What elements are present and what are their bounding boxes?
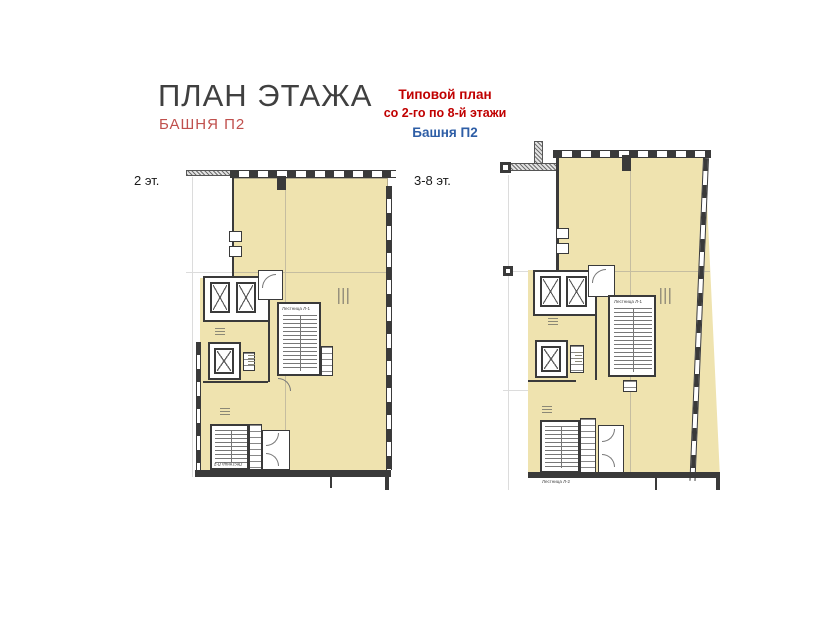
column	[503, 266, 513, 276]
wall-niche	[556, 243, 569, 254]
vestibule	[258, 270, 283, 300]
elevator-icon	[541, 346, 561, 372]
shaft	[580, 418, 596, 473]
text-mark	[248, 355, 255, 365]
staircase-room-bottom	[540, 420, 580, 473]
area-label-mark	[338, 288, 350, 304]
door-arc-icon	[602, 429, 615, 442]
wall-segment	[203, 381, 268, 383]
wall-segment	[528, 380, 576, 382]
staircase-room-bottom: Лестница Л-2	[210, 424, 249, 470]
floor-plan-3-8: Лестница Л-1 Лестница Л-2	[498, 138, 730, 508]
staircase-label: Лестница Л-1	[614, 299, 642, 304]
stair-treads-icon	[545, 426, 578, 468]
typical-plan-note: Типовой план со 2-го по 8-й этажи Башня …	[360, 85, 530, 142]
elevator-icon	[566, 276, 587, 307]
window-wall-top	[553, 150, 711, 158]
page-subtitle: БАШНЯ П2	[159, 116, 245, 133]
grid-line	[503, 390, 528, 391]
wall-segment	[556, 158, 559, 272]
elevator-x-icon	[544, 349, 558, 369]
grid-line	[192, 177, 193, 477]
staircase-room-top: Лестница Л-1	[608, 295, 656, 377]
text-mark	[542, 406, 552, 414]
wall-niche	[229, 231, 242, 242]
stair-divider	[561, 426, 562, 468]
wall-segment	[655, 478, 657, 490]
elevator-icon	[540, 276, 561, 307]
wall-bottom	[195, 470, 391, 477]
elevator-room	[535, 340, 568, 378]
elevator-x-icon	[543, 279, 558, 304]
grid-line	[508, 175, 509, 490]
stair-divider	[300, 315, 301, 371]
wall-segment	[716, 477, 720, 490]
door-arc-icon	[592, 269, 606, 283]
elevator-room	[208, 342, 241, 380]
shaft	[321, 346, 333, 376]
wall-niche	[556, 228, 569, 239]
elevator-x-icon	[569, 279, 584, 304]
vestibule	[262, 430, 290, 470]
window-wall-right	[386, 186, 392, 470]
text-mark	[220, 408, 230, 416]
door-arc-icon	[266, 453, 279, 466]
vestibule	[588, 265, 615, 297]
elevator-x-icon	[239, 285, 253, 310]
shaft	[249, 424, 262, 470]
wall-niche	[229, 246, 242, 257]
vestibule	[598, 425, 624, 473]
elevator-icon	[214, 348, 234, 374]
wall-segment	[385, 477, 389, 490]
text-mark	[215, 328, 225, 336]
wall-segment	[232, 178, 234, 278]
elevator-x-icon	[213, 285, 227, 310]
hatched-wall	[503, 163, 558, 171]
stair-treads-icon	[283, 315, 317, 371]
note-line-1: Типовой план	[360, 85, 530, 104]
floor-label-2: 2 эт.	[134, 173, 159, 188]
floor-plan-sheet: ПЛАН ЭТАЖА БАШНЯ П2 Типовой план со 2-го…	[0, 0, 830, 637]
stair-divider	[633, 308, 634, 372]
door-arc-icon	[262, 274, 276, 288]
grid-line	[232, 272, 388, 273]
stair-divider	[231, 430, 232, 463]
page-title: ПЛАН ЭТАЖА	[158, 78, 372, 114]
area-label-mark	[660, 288, 672, 304]
wall-segment	[330, 477, 332, 488]
shaft	[623, 380, 637, 392]
elevator-icon	[236, 282, 256, 313]
window-wall-left	[196, 342, 201, 470]
stair-treads-icon	[215, 430, 247, 463]
floor-plan-2: Лестница Л-1 Лестница Л-2	[186, 140, 401, 510]
staircase-label: Лестница Л-2	[542, 479, 570, 484]
text-mark	[575, 352, 582, 362]
staircase-label: Лестница Л-2	[214, 462, 242, 467]
elevator-x-icon	[217, 351, 231, 371]
elevator-icon	[210, 282, 230, 313]
window-wall-top	[230, 170, 396, 178]
note-line-2: со 2-го по 8-й этажи	[360, 104, 530, 123]
floor-label-3-8: 3-8 эт.	[414, 173, 451, 188]
staircase-label: Лестница Л-1	[282, 306, 310, 311]
wall-segment	[268, 322, 270, 382]
column	[277, 176, 286, 190]
grid-line	[186, 272, 232, 273]
wall-segment	[595, 297, 597, 380]
text-mark	[548, 318, 558, 326]
column	[622, 155, 631, 171]
stair-treads-icon	[614, 308, 652, 372]
door-arc-icon	[602, 454, 615, 467]
staircase-room-top: Лестница Л-1	[277, 302, 321, 376]
door-arc-icon	[266, 433, 279, 446]
column	[500, 162, 511, 173]
